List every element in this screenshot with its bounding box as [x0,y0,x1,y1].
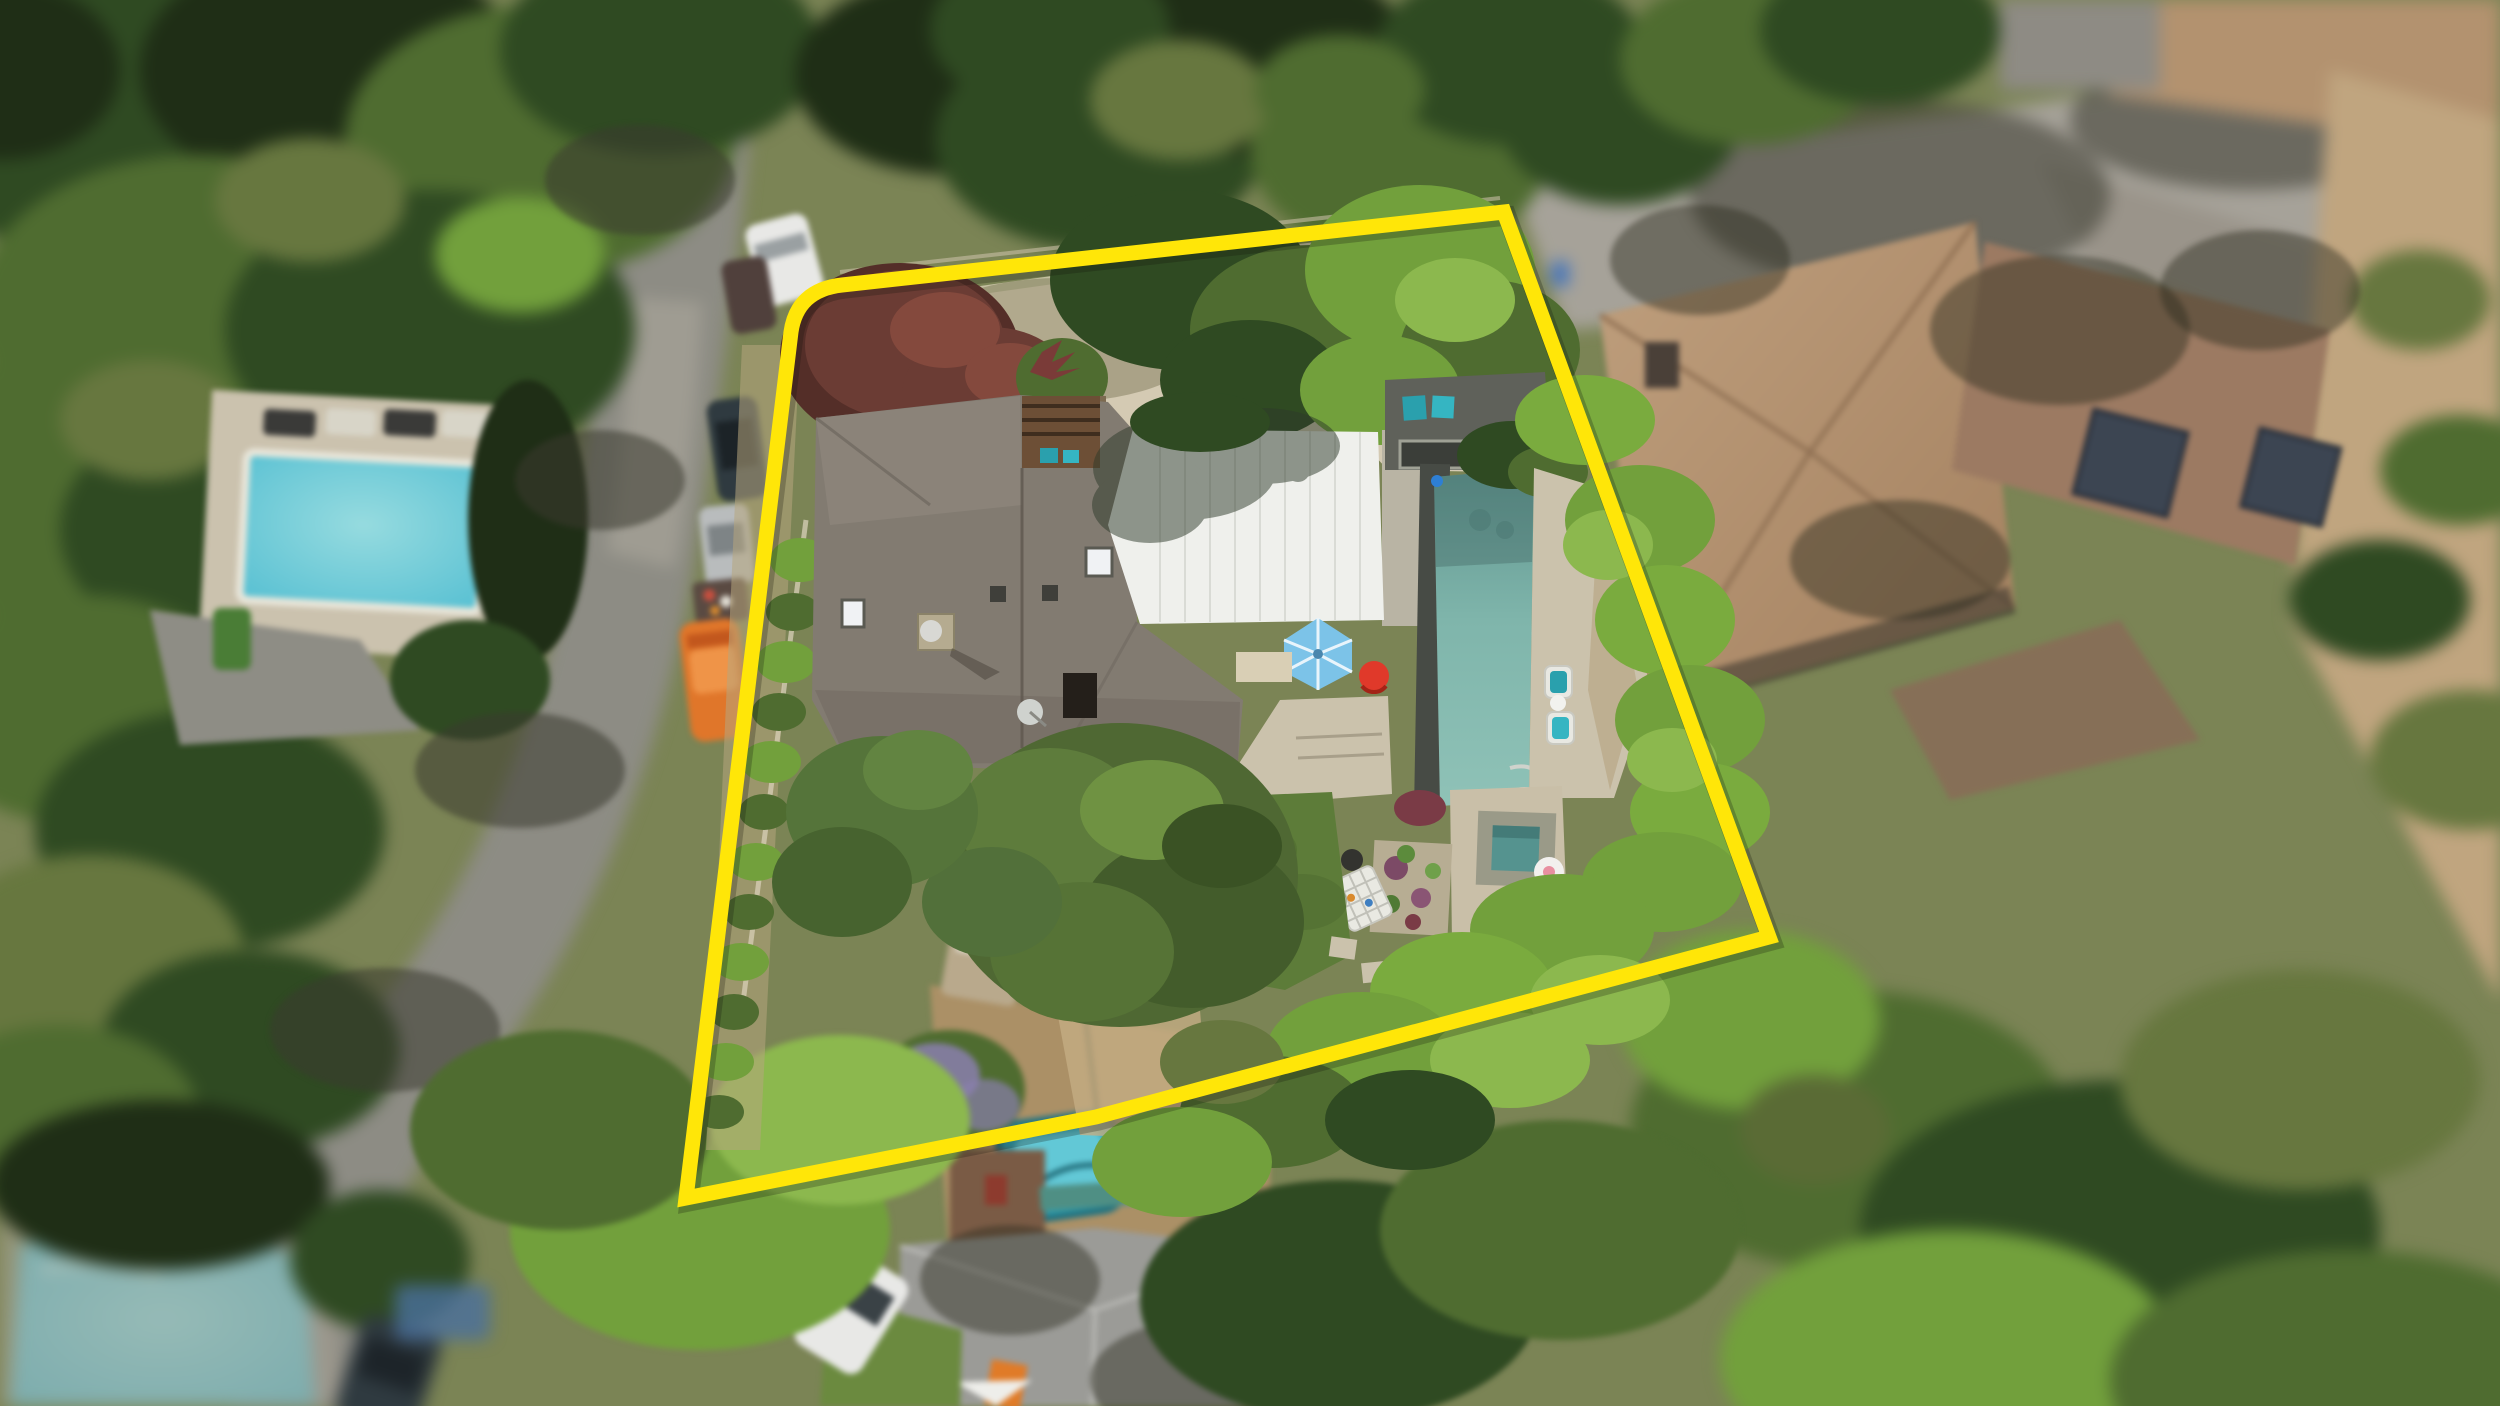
skylight [842,600,864,627]
courtyard-opening [1063,673,1097,718]
roof-vent [990,586,1006,602]
pool-ball [1431,475,1443,487]
grill [1341,849,1363,871]
chimney-neighbor [1645,342,1679,388]
patio-tile [1236,652,1292,682]
aerial-photo [0,0,2500,1406]
maroon-shrub [1394,790,1446,826]
recycle-bin [1552,262,1568,286]
skylight [1086,548,1112,576]
roof-vent [1042,585,1058,601]
blue-tarp [395,1285,490,1340]
pool-slide [213,608,251,670]
pond [1740,1075,1890,1185]
roof-deck [1022,396,1100,468]
aerial-photo-canvas [0,0,2500,1406]
